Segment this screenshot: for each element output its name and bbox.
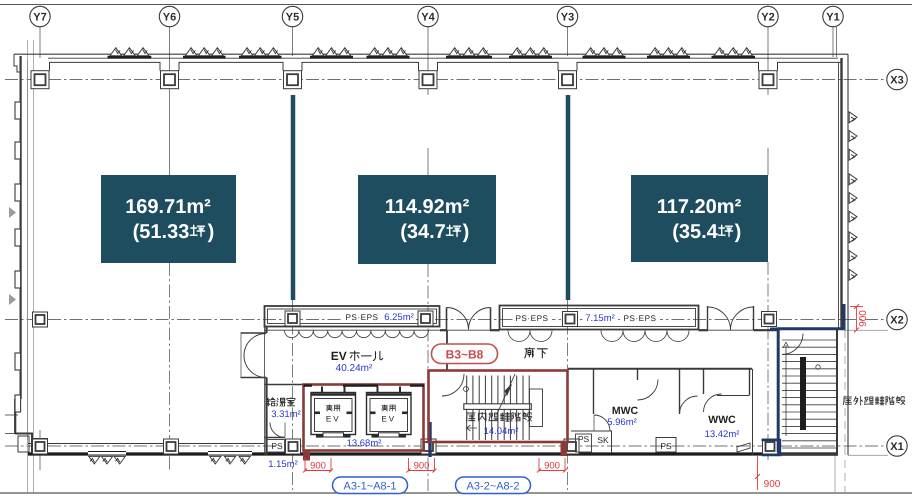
- svg-text:Y5: Y5: [286, 12, 299, 24]
- svg-text:PS·EPS: PS·EPS: [515, 314, 548, 323]
- svg-text:Y4: Y4: [421, 12, 435, 24]
- svg-text:114.92m²: 114.92m²: [385, 196, 470, 218]
- svg-text:PS: PS: [271, 441, 283, 451]
- svg-text:MWC: MWC: [612, 405, 639, 417]
- svg-text:(34.7: (34.7: [400, 221, 446, 243]
- svg-text:X1: X1: [890, 441, 903, 453]
- svg-text:Y7: Y7: [33, 12, 46, 24]
- svg-text:169.71m²: 169.71m²: [125, 196, 211, 218]
- svg-text:900: 900: [414, 461, 430, 472]
- svg-text:EV: EV: [331, 349, 347, 363]
- svg-text:PS: PS: [578, 434, 590, 444]
- svg-text:EV: EV: [326, 415, 341, 424]
- svg-text:900: 900: [858, 310, 869, 327]
- svg-text:SK: SK: [597, 435, 609, 445]
- svg-text:PS: PS: [660, 441, 672, 451]
- svg-text:): ): [735, 221, 742, 243]
- svg-text:Y3: Y3: [561, 12, 574, 24]
- svg-text:40.24m²: 40.24m²: [336, 363, 373, 374]
- svg-text:3.31m²: 3.31m²: [271, 409, 301, 420]
- svg-text:5.96m²: 5.96m²: [607, 417, 637, 428]
- svg-text:X2: X2: [890, 315, 903, 327]
- svg-text:): ): [208, 221, 215, 243]
- svg-text:1.15m²: 1.15m²: [268, 459, 298, 470]
- svg-text:Y2: Y2: [761, 12, 774, 24]
- svg-text:6.25m²: 6.25m²: [384, 312, 414, 323]
- svg-text:A3-1~A8-1: A3-1~A8-1: [344, 481, 397, 493]
- svg-text:B3~B8: B3~B8: [446, 348, 484, 362]
- svg-text:117.20m²: 117.20m²: [657, 196, 742, 218]
- svg-text:13.42m²: 13.42m²: [705, 429, 740, 440]
- svg-text:(51.33: (51.33: [133, 221, 190, 243]
- svg-text:Y1: Y1: [826, 12, 839, 24]
- svg-text:14.04m²: 14.04m²: [484, 426, 519, 437]
- svg-text:X3: X3: [890, 75, 903, 87]
- svg-text:WWC: WWC: [708, 414, 736, 426]
- svg-text:EV: EV: [381, 415, 396, 424]
- svg-text:13.68m²: 13.68m²: [347, 438, 382, 449]
- svg-text:900: 900: [544, 461, 560, 472]
- svg-text:PS·EPS: PS·EPS: [623, 314, 656, 323]
- svg-text:900: 900: [310, 461, 326, 472]
- svg-text:PS·EPS: PS·EPS: [345, 313, 378, 322]
- svg-text:A3-2~A8-2: A3-2~A8-2: [467, 481, 520, 493]
- svg-text:): ): [463, 221, 470, 243]
- svg-text:(35.4: (35.4: [672, 221, 718, 243]
- svg-text:Y6: Y6: [163, 12, 176, 24]
- svg-text:900: 900: [764, 479, 781, 490]
- svg-text:7.15m²: 7.15m²: [585, 313, 615, 324]
